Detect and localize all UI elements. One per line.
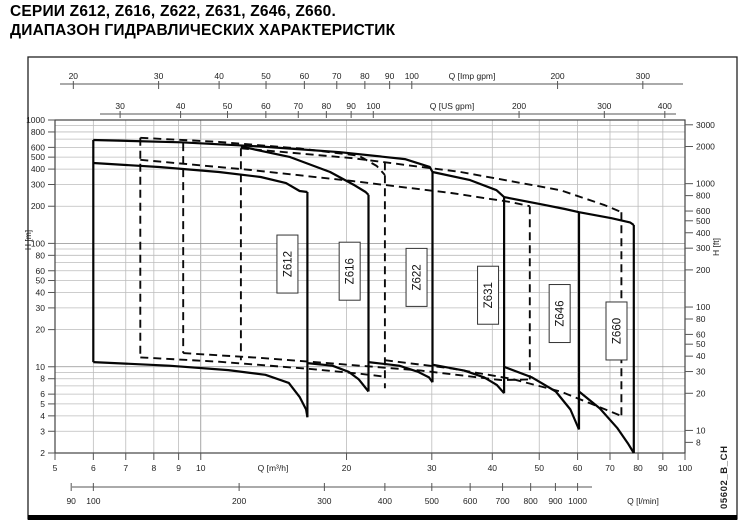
tick-label: 100 (696, 302, 710, 312)
axis-imp: 2030405060708090100200300Q [Imp gpm] (60, 71, 683, 89)
tick-label: 50 (696, 339, 706, 349)
series-label-Z660: Z660 (606, 302, 627, 360)
tick-label: 80 (696, 314, 706, 324)
axis-h-ft: 3000200010008006005004003002001008060504… (685, 120, 721, 448)
tick-label: 700 (495, 496, 509, 506)
series-Z622 (93, 140, 432, 382)
tick-label: 20 (342, 463, 352, 473)
tick-label: 500 (696, 216, 710, 226)
tick-label: 300 (597, 101, 611, 111)
tick-label: 100 (86, 496, 100, 506)
tick-label: 10 (36, 362, 46, 372)
tick-label: 60 (261, 101, 271, 111)
tick-label: 200 (550, 71, 564, 81)
tick-label: 10 (696, 425, 706, 435)
tick-label: 20 (36, 325, 46, 335)
tick-label: 20 (69, 71, 79, 81)
tick-label: 4 (40, 411, 45, 421)
tick-label: 40 (214, 71, 224, 81)
series-label-Z646: Z646 (549, 285, 570, 343)
tick-label: 300 (317, 496, 331, 506)
series-Z646-bottom (504, 367, 579, 430)
tick-label: 60 (36, 266, 46, 276)
tick-label: 10 (196, 463, 206, 473)
tick-label: 8 (40, 374, 45, 384)
tick-label: 60 (573, 463, 583, 473)
axis-unit-label: Q [m³/h] (258, 463, 289, 473)
tick-label: 50 (223, 101, 233, 111)
tick-label: 300 (696, 243, 710, 253)
tick-label: 600 (696, 206, 710, 216)
tick-label: 2000 (696, 142, 715, 152)
tick-label: 200 (696, 265, 710, 275)
tick-label: 500 (31, 152, 45, 162)
tick-label: 6 (91, 463, 96, 473)
series-label-text: Z616 (345, 258, 357, 284)
axis-us: 30405060708090100200300400Q [US gpm] (100, 101, 676, 118)
tick-label: 30 (696, 367, 706, 377)
tick-label: 400 (378, 496, 392, 506)
doc-code: 05602_B_CH (719, 399, 730, 509)
tick-label: 20 (696, 388, 706, 398)
tick-label: 80 (322, 101, 332, 111)
tick-label: 80 (36, 250, 46, 260)
series-label-text: Z612 (282, 251, 294, 277)
tick-label: 6 (40, 389, 45, 399)
tick-label: 600 (31, 142, 45, 152)
tick-label: 200 (512, 101, 526, 111)
tick-label: 400 (696, 228, 710, 238)
series-label-text: Z631 (483, 282, 495, 308)
tick-label: 40 (36, 287, 46, 297)
tick-label: 40 (176, 101, 186, 111)
tick-label: 90 (658, 463, 668, 473)
tick-label: 40 (488, 463, 498, 473)
tick-label: 2 (40, 448, 45, 458)
tick-label: 1000 (26, 115, 45, 125)
tick-label: 300 (31, 180, 45, 190)
tick-label: 100 (366, 101, 380, 111)
tick-label: 90 (346, 101, 356, 111)
series-label-text: Z660 (611, 318, 623, 344)
tick-label: 9 (176, 463, 181, 473)
tick-label: 100 (678, 463, 692, 473)
overlay-curve (241, 148, 622, 212)
tick-label: 50 (534, 463, 544, 473)
tick-label: 900 (548, 496, 562, 506)
tick-label: 60 (696, 329, 706, 339)
tick-label: 30 (427, 463, 437, 473)
tick-label: 30 (36, 303, 46, 313)
series-Z660-top (579, 212, 634, 225)
tick-label: 3000 (696, 120, 715, 130)
series-Z616-bottom (307, 363, 368, 391)
series-label-Z612: Z612 (277, 235, 298, 293)
tick-label: 90 (66, 496, 76, 506)
tick-label: 5 (40, 399, 45, 409)
axis-unit-label: Q [US gpm] (430, 101, 474, 111)
axis-unit-label: H [m] (23, 230, 33, 250)
document-page: СЕРИИ Z612, Z616, Z622, Z631, Z646, Z660… (0, 0, 746, 528)
tick-label: 50 (261, 71, 271, 81)
series-label-text: Z622 (412, 264, 424, 290)
tick-label: 70 (605, 463, 615, 473)
tick-label: 70 (294, 101, 304, 111)
tick-label: 8 (151, 463, 156, 473)
tick-label: 400 (658, 101, 672, 111)
overlay-curve (140, 160, 530, 206)
tick-label: 5 (53, 463, 58, 473)
tick-label: 80 (360, 71, 370, 81)
tick-label: 1000 (568, 496, 587, 506)
tick-label: 7 (123, 463, 128, 473)
series-label-text: Z646 (555, 300, 567, 326)
series-label-Z631: Z631 (478, 266, 499, 324)
tick-label: 300 (636, 71, 650, 81)
tick-label: 800 (524, 496, 538, 506)
axis-unit-label: Q [l/min] (627, 496, 659, 506)
series-Z646-top (504, 197, 579, 212)
tick-label: 90 (385, 71, 395, 81)
tick-label: 600 (463, 496, 477, 506)
tick-label: 8 (696, 437, 701, 447)
series-label-Z622: Z622 (406, 248, 427, 306)
tick-label: 3 (40, 426, 45, 436)
tick-label: 30 (115, 101, 125, 111)
tick-label: 70 (332, 71, 342, 81)
overlay-60hz (140, 138, 621, 416)
bottom-rule (28, 515, 737, 520)
tick-label: 500 (425, 496, 439, 506)
tick-label: 100 (405, 71, 419, 81)
hydraulic-range-chart: 2030405060708090100200300Q [Imp gpm]3040… (0, 0, 746, 528)
tick-label: 80 (633, 463, 643, 473)
series-Z660-bottom (579, 392, 634, 454)
axis-m3h: 56789102030405060708090100Q [m³/h] (53, 453, 693, 473)
tick-label: 50 (36, 276, 46, 286)
tick-label: 800 (696, 191, 710, 201)
tick-label: 30 (154, 71, 164, 81)
tick-label: 200 (31, 201, 45, 211)
tick-label: 1000 (696, 179, 715, 189)
tick-label: 400 (31, 164, 45, 174)
tick-label: 60 (300, 71, 310, 81)
series-label-Z616: Z616 (339, 242, 360, 300)
axis-unit-label: H [ft] (711, 238, 721, 256)
tick-label: 40 (696, 351, 706, 361)
tick-label: 200 (232, 496, 246, 506)
tick-label: 800 (31, 127, 45, 137)
axis-unit-label: Q [Imp gpm] (449, 71, 496, 81)
axis-lmin: 901002003004005006007008009001000Q [l/mi… (66, 483, 658, 506)
